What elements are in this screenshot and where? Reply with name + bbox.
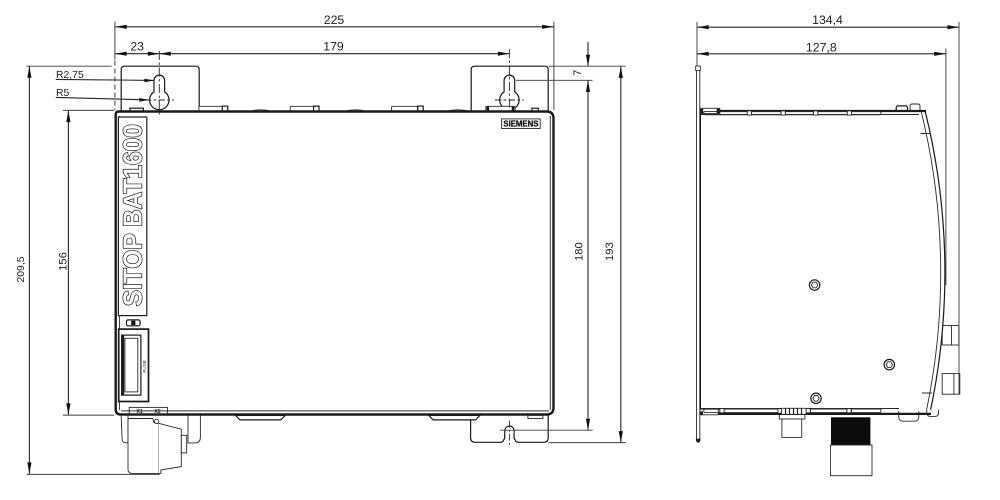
svg-text:134,4: 134,4 bbox=[812, 13, 843, 27]
svg-text:FUSE: FUSE bbox=[142, 360, 147, 373]
svg-text:209,5: 209,5 bbox=[16, 256, 27, 282]
svg-text:180: 180 bbox=[574, 242, 586, 261]
svg-text:225: 225 bbox=[324, 13, 345, 27]
svg-text:179: 179 bbox=[323, 40, 344, 54]
svg-text:193: 193 bbox=[604, 242, 616, 261]
svg-text:7: 7 bbox=[572, 70, 584, 76]
svg-text:156: 156 bbox=[58, 252, 70, 271]
svg-text:SITOP BAT1600: SITOP BAT1600 bbox=[117, 124, 147, 306]
svg-text:X2: X2 bbox=[154, 409, 160, 415]
svg-text:X1: X1 bbox=[136, 409, 142, 415]
svg-text:SIEMENS: SIEMENS bbox=[503, 120, 539, 129]
svg-text:23: 23 bbox=[130, 40, 144, 54]
svg-text:127,8: 127,8 bbox=[806, 40, 837, 54]
